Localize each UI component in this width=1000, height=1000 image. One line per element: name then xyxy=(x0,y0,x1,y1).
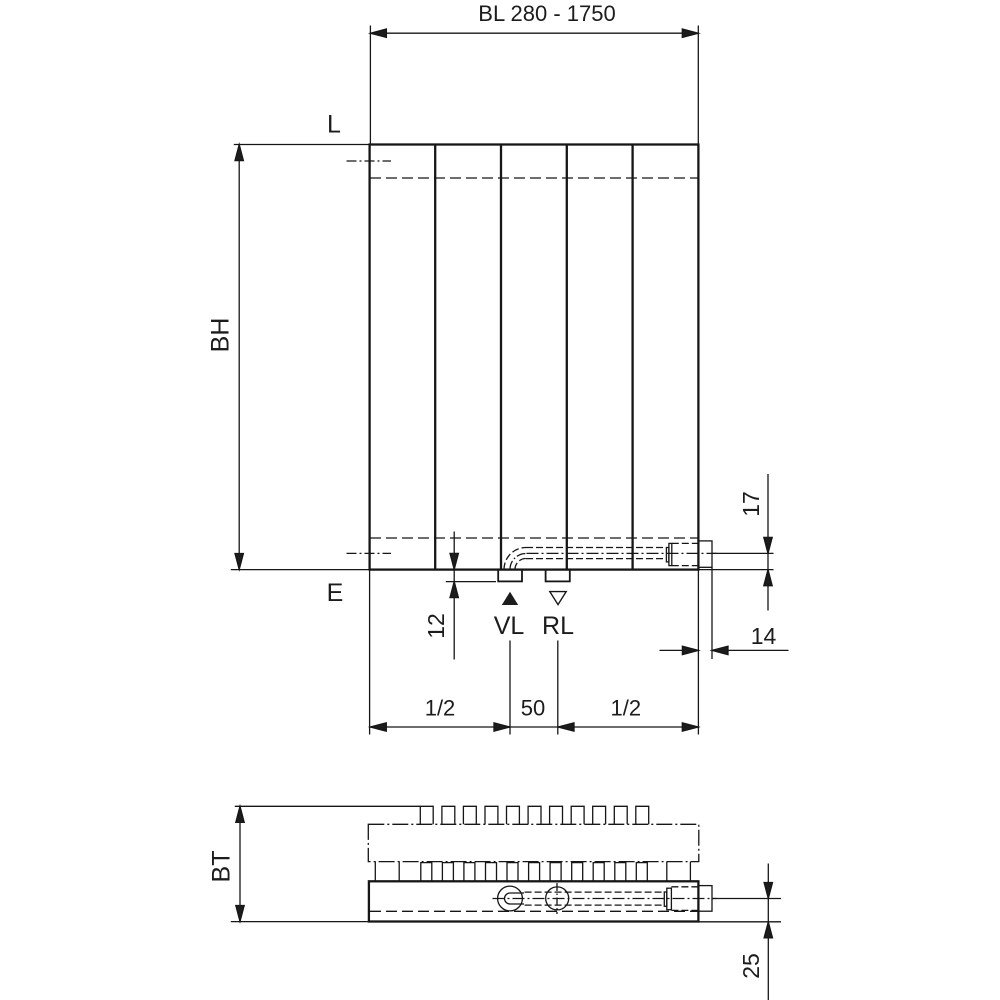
svg-text:17: 17 xyxy=(738,491,764,517)
svg-text:50: 50 xyxy=(521,696,545,721)
svg-text:RL: RL xyxy=(542,612,574,640)
svg-text:1/2: 1/2 xyxy=(611,696,642,721)
svg-text:1/2: 1/2 xyxy=(425,696,456,721)
svg-text:14: 14 xyxy=(751,623,777,649)
svg-text:12: 12 xyxy=(423,613,449,639)
svg-text:25: 25 xyxy=(738,953,764,979)
svg-text:BT: BT xyxy=(208,851,236,883)
svg-text:BH: BH xyxy=(207,318,235,353)
svg-text:E: E xyxy=(327,579,344,607)
svg-text:BL 280 - 1750: BL 280 - 1750 xyxy=(478,1,615,26)
svg-text:L: L xyxy=(327,111,341,139)
svg-text:VL: VL xyxy=(494,612,525,640)
